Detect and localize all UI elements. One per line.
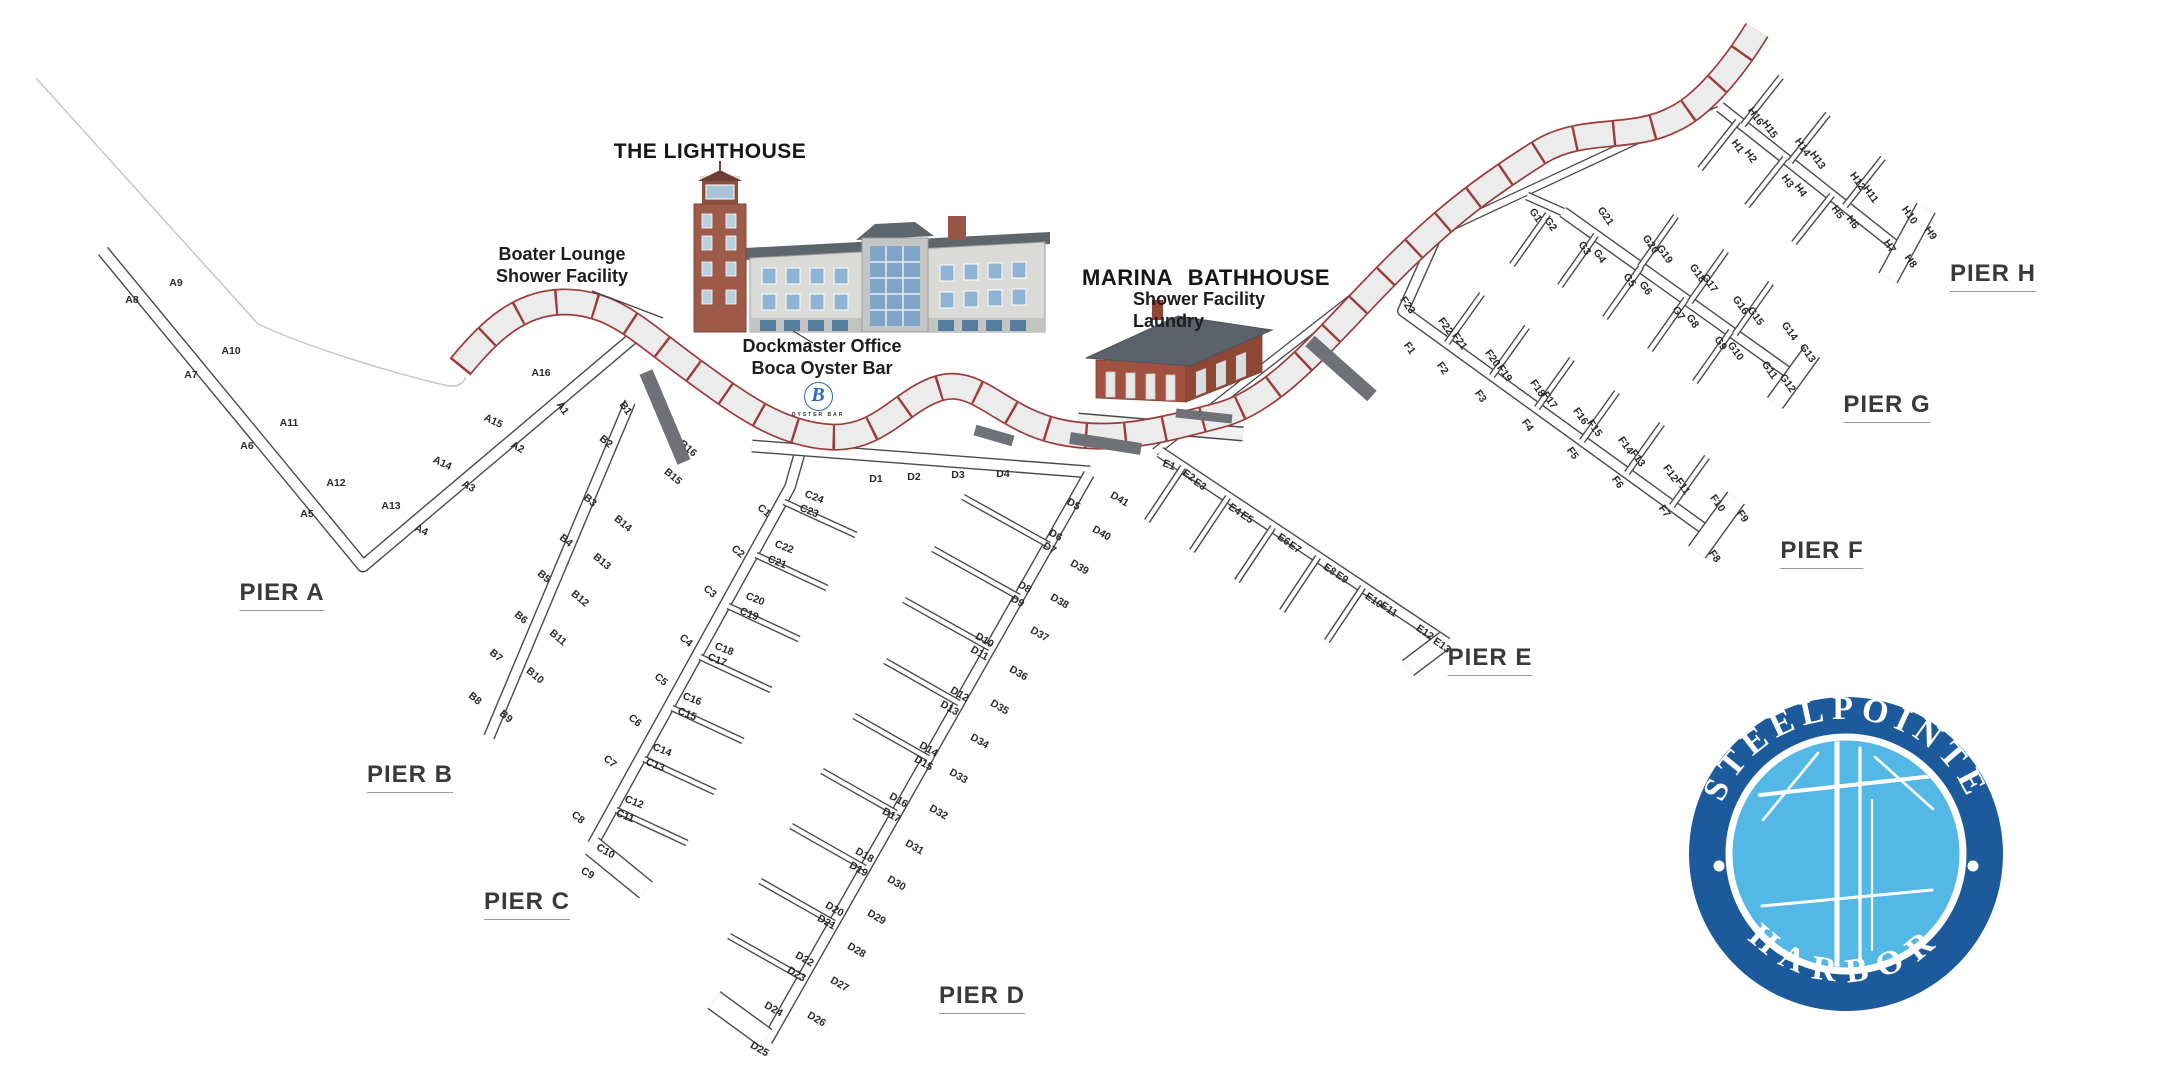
pier-g-label: PIER G bbox=[1843, 391, 1930, 423]
slip-label-f1: F1 bbox=[1401, 340, 1418, 357]
slip-label-a10: A10 bbox=[221, 345, 240, 357]
dockmaster-line1: Dockmaster Office bbox=[742, 335, 901, 357]
pier-c-dock: C1C2C3C4C5C6C7C8C9C10C11C12C13C14C15C16C… bbox=[569, 452, 856, 890]
slip-label-d38: D38 bbox=[1048, 591, 1071, 611]
pier-h-dock: H1H2H3H4H5H6H7H8H9H10H11H12H13H14H15H16 bbox=[1700, 77, 1939, 278]
dockmaster-callout: Dockmaster Office Boca Oyster Bar bbox=[742, 335, 901, 379]
slip-label-d28: D28 bbox=[845, 940, 868, 960]
slip-label-b8: B8 bbox=[466, 690, 484, 708]
pier-f-label: PIER F bbox=[1780, 537, 1863, 569]
dockmaster-line2: Boca Oyster Bar bbox=[742, 357, 901, 379]
lighthouse-building bbox=[592, 161, 1050, 343]
slip-label-c4: C4 bbox=[677, 632, 695, 650]
slip-label-d39: D39 bbox=[1068, 557, 1091, 577]
pier-c-label: PIER C bbox=[484, 888, 570, 920]
slip-label-a7: A7 bbox=[184, 369, 198, 381]
slip-label-a14: A14 bbox=[431, 454, 454, 473]
slip-label-b15: B15 bbox=[662, 466, 685, 488]
slip-label-c7: C7 bbox=[601, 753, 619, 771]
slip-label-a6: A6 bbox=[240, 440, 254, 452]
pier-e-dock: E1E2E3E4E5E6E7E8E9E10E11E12E13 bbox=[1147, 452, 1453, 668]
slip-label-d27: D27 bbox=[828, 974, 851, 994]
slip-label-c11: C11 bbox=[614, 807, 636, 825]
pier-a-label: PIER A bbox=[239, 579, 324, 611]
slip-label-d26: D26 bbox=[805, 1009, 828, 1029]
slip-label-d34: D34 bbox=[968, 731, 991, 751]
boater-lounge-line1: Boater Lounge bbox=[496, 243, 628, 265]
slip-label-g14: G14 bbox=[1779, 320, 1800, 343]
slip-label-d33: D33 bbox=[947, 766, 970, 786]
pier-b-label: PIER B bbox=[367, 761, 453, 793]
slip-label-c8: C8 bbox=[569, 809, 587, 827]
pier-d-label: PIER D bbox=[939, 982, 1025, 1014]
slip-label-b7: B7 bbox=[487, 647, 505, 665]
slip-label-b11: B11 bbox=[547, 627, 569, 648]
slip-label-c12: C12 bbox=[623, 793, 646, 811]
slip-label-a15: A15 bbox=[482, 412, 505, 431]
boater-lounge-line2: Shower Facility bbox=[496, 265, 628, 287]
slip-label-a9: A9 bbox=[169, 277, 183, 289]
lighthouse-title: THE LIGHTHOUSE bbox=[614, 140, 807, 164]
slip-label-d2: D2 bbox=[907, 471, 921, 483]
slip-label-d25: D25 bbox=[748, 1039, 771, 1059]
slip-label-d29: D29 bbox=[865, 907, 888, 927]
slip-label-h2: H2 bbox=[1742, 147, 1760, 165]
slip-label-b12: B12 bbox=[569, 588, 592, 610]
piers-layer: A1A2A3A4A5A6A7A8A9A10A11A12A13A14A15A16B… bbox=[103, 77, 1939, 1059]
slip-label-b13: B13 bbox=[591, 551, 614, 573]
slip-label-b14: B14 bbox=[612, 513, 635, 535]
slip-label-c6: C6 bbox=[626, 712, 644, 730]
slip-label-f2: F2 bbox=[1434, 360, 1451, 377]
slip-label-d32: D32 bbox=[927, 802, 950, 822]
slip-label-c9: C9 bbox=[579, 865, 597, 882]
slip-label-f5: F5 bbox=[1564, 445, 1581, 462]
slip-label-b6: B6 bbox=[512, 609, 530, 627]
steelpointe-harbor-logo: STEELPOINTE HARBOR bbox=[1689, 690, 2003, 1011]
slip-label-d1: D1 bbox=[869, 473, 883, 485]
slip-label-d41: D41 bbox=[1108, 489, 1131, 509]
slip-label-g21: G21 bbox=[1595, 205, 1616, 228]
slip-label-a5: A5 bbox=[300, 508, 314, 520]
shoreline bbox=[36, 78, 466, 386]
slip-label-d31: D31 bbox=[903, 837, 926, 857]
slip-label-d36: D36 bbox=[1007, 663, 1030, 683]
marina-map: A1A2A3A4A5A6A7A8A9A10A11A12A13A14A15A16B… bbox=[0, 0, 2168, 1084]
slip-label-a13: A13 bbox=[381, 500, 400, 512]
slip-label-c3: C3 bbox=[701, 583, 719, 601]
slip-label-d35: D35 bbox=[988, 697, 1011, 717]
slip-label-d3: D3 bbox=[951, 469, 965, 481]
bathhouse-callout: Shower Facility Laundry bbox=[1133, 288, 1265, 332]
slip-label-d37: D37 bbox=[1028, 624, 1051, 644]
slip-label-c5: C5 bbox=[652, 671, 670, 689]
slip-label-c20: C20 bbox=[744, 590, 767, 608]
slip-label-f3: F3 bbox=[1472, 388, 1489, 405]
slip-label-a11: A11 bbox=[280, 417, 299, 429]
slip-label-d4: D4 bbox=[996, 468, 1010, 480]
slip-label-c14: C14 bbox=[651, 741, 674, 759]
boca-logo-caption: OYSTER BAR bbox=[773, 412, 863, 418]
slip-label-a16: A16 bbox=[531, 367, 550, 379]
pier-e-label: PIER E bbox=[1448, 644, 1533, 676]
slip-label-b10: B10 bbox=[524, 665, 547, 687]
slip-label-a8: A8 bbox=[125, 294, 139, 306]
slip-label-c22: C22 bbox=[773, 538, 796, 556]
slip-label-d30: D30 bbox=[885, 873, 908, 893]
boater-lounge-callout: Boater Lounge Shower Facility bbox=[496, 243, 628, 287]
bathhouse-line1: Shower Facility bbox=[1133, 288, 1265, 310]
boca-logo-letter: B bbox=[804, 382, 833, 411]
pier-h-label: PIER H bbox=[1950, 260, 2036, 292]
slip-label-f4: F4 bbox=[1519, 417, 1536, 434]
bathhouse-line2: Laundry bbox=[1133, 310, 1265, 332]
slip-label-a12: A12 bbox=[326, 477, 345, 489]
boca-oyster-bar-logo: B OYSTER BAR bbox=[773, 382, 863, 418]
slip-label-d40: D40 bbox=[1090, 523, 1113, 543]
